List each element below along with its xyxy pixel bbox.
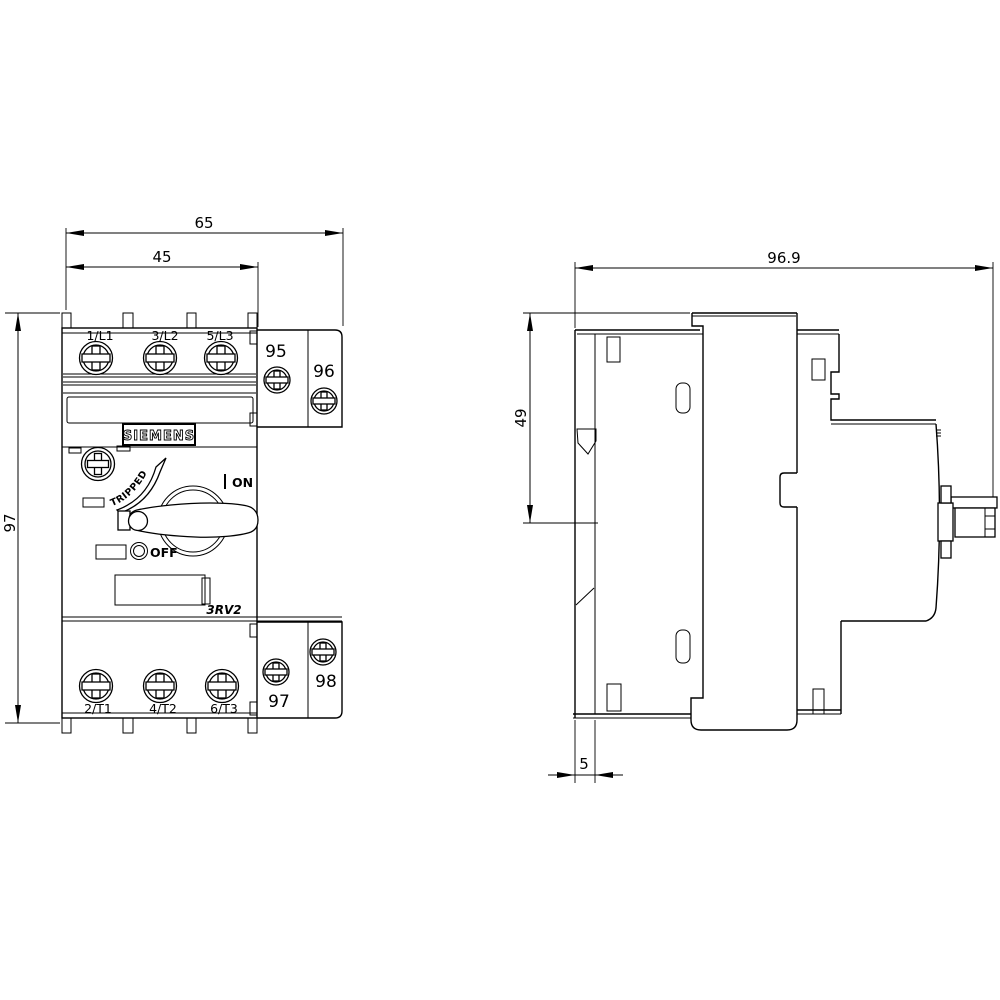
terminal-label-1L1: 1/L1 (86, 328, 113, 343)
line-terminals: 1/L1 3/L2 5/L3 (80, 328, 238, 375)
dim-label-main-width: 45 (152, 248, 171, 266)
tripped-indicator: TRIPPED (109, 458, 166, 513)
load-terminals: 2/T1 4/T2 6/T3 (80, 670, 239, 717)
dim-label-body-depth: 49 (512, 408, 530, 427)
vent-slot (676, 630, 690, 663)
aux-block-bottom: 97 98 (250, 622, 342, 718)
vent-slot (607, 337, 620, 362)
off-indicator-circle-inner (134, 546, 145, 557)
dimension-body-depth: 49 (512, 313, 690, 523)
mounting-tabs-top (62, 313, 257, 328)
terminal-screw-6T3 (206, 670, 239, 703)
dimension-rail-offset: 5 (548, 720, 623, 783)
terminal-cover-plate (67, 397, 253, 423)
front-view: 65 45 97 (1, 214, 343, 733)
dimension-height: 97 (1, 313, 60, 723)
aux-block-top: 95 96 (250, 330, 342, 427)
off-marking: OFF (131, 543, 178, 561)
terminal-screw-5L3 (205, 342, 238, 375)
front-housing-profile (831, 418, 997, 621)
shaft-fin-bottom (941, 541, 951, 558)
aux-terminal-label-98: 98 (315, 672, 337, 692)
aux-terminal-label-97: 97 (268, 692, 290, 712)
housing-back-profile (797, 330, 841, 714)
control-panel: TRIPPED ON OFF 3RV2 (69, 446, 258, 617)
terminal-label-2T1: 2/T1 (84, 701, 112, 716)
terminal-screw-4T2 (144, 670, 177, 703)
dim-label-rail-offset: 5 (579, 755, 589, 773)
terminal-screw-3L2 (144, 342, 177, 375)
aux-screw-95 (264, 367, 290, 393)
terminal-screw-1L1 (80, 342, 113, 375)
housing-mid-profile (691, 313, 797, 730)
dimension-main-width: 45 (66, 248, 258, 327)
aux-terminal-label-95: 95 (265, 342, 287, 362)
dimension-total-depth: 96.9 (575, 249, 993, 505)
terminal-screw-2T1 (80, 670, 113, 703)
din-rail-section (573, 330, 703, 718)
tripped-label: TRIPPED (109, 468, 150, 508)
vent-slot (607, 684, 621, 711)
shaft-fin-top (941, 486, 951, 503)
dim-label-total-width: 65 (194, 214, 213, 232)
shaft-flange (951, 497, 997, 508)
vent-slot (676, 383, 690, 413)
reset-window (96, 545, 126, 559)
brand-plate: SIEMENS (123, 424, 195, 445)
knob-handle (129, 503, 258, 537)
aux-screw-96 (311, 388, 337, 414)
terminal-label-4T2: 4/T2 (149, 701, 177, 716)
technical-drawing-page: 65 45 97 (0, 0, 1000, 1000)
vent-slot (812, 359, 825, 380)
svg-text:TRIPPED: TRIPPED (109, 468, 150, 508)
aux-terminal-label-96: 96 (313, 362, 335, 382)
label-window-tab (202, 578, 210, 604)
aux-screw-98 (310, 639, 336, 665)
brand-label: SIEMENS (123, 429, 195, 444)
test-button (83, 498, 104, 507)
dimension-total-width: 65 (66, 214, 343, 326)
mounting-tabs-bottom (62, 718, 257, 733)
off-label: OFF (150, 545, 178, 560)
dim-label-height: 97 (1, 513, 19, 532)
panel-marker (69, 448, 81, 453)
knob-pivot (129, 512, 148, 531)
din-clip-edge (576, 588, 594, 605)
din-clip-hook (577, 429, 596, 454)
label-window (115, 575, 205, 605)
knob-shaft (938, 486, 997, 558)
terminal-cover-ridges (63, 374, 256, 393)
terminal-label-5L3: 5/L3 (206, 328, 233, 343)
model-label: 3RV2 (206, 603, 241, 617)
on-marking: ON (225, 474, 253, 490)
side-view: 96.9 49 5 (512, 249, 997, 783)
current-setting-dial (82, 448, 115, 481)
aux-screw-97 (263, 659, 289, 685)
aux-clip-tab (250, 624, 257, 637)
on-label: ON (232, 475, 253, 490)
terminal-label-6T3: 6/T3 (210, 701, 238, 716)
dim-label-total-depth: 96.9 (767, 249, 800, 267)
shaft-hub (938, 503, 953, 541)
shaft-body (955, 508, 995, 537)
terminal-label-3L2: 3/L2 (151, 328, 178, 343)
dimension-drawing: 65 45 97 (0, 0, 1000, 1000)
